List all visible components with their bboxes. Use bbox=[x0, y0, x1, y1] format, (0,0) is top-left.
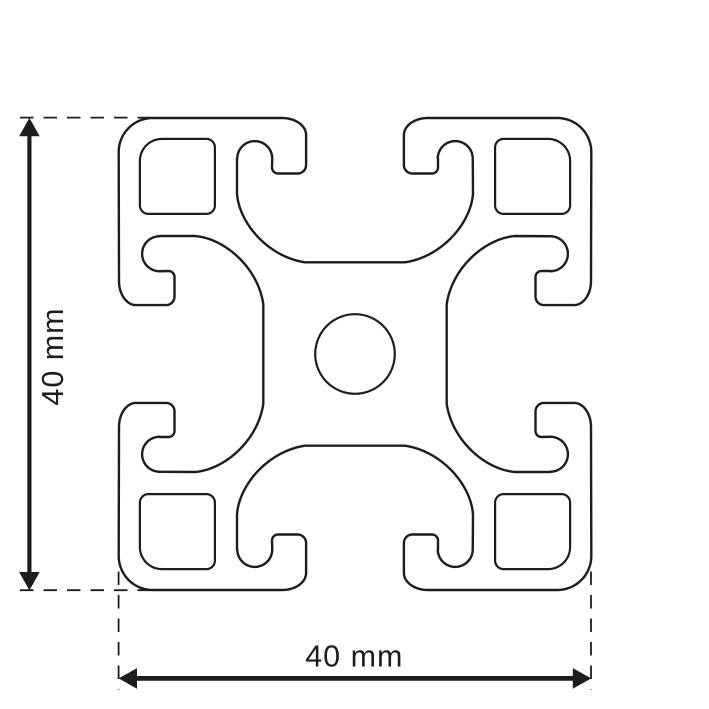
svg-text:40 mm: 40 mm bbox=[36, 307, 70, 405]
svg-text:40 mm: 40 mm bbox=[305, 640, 403, 674]
